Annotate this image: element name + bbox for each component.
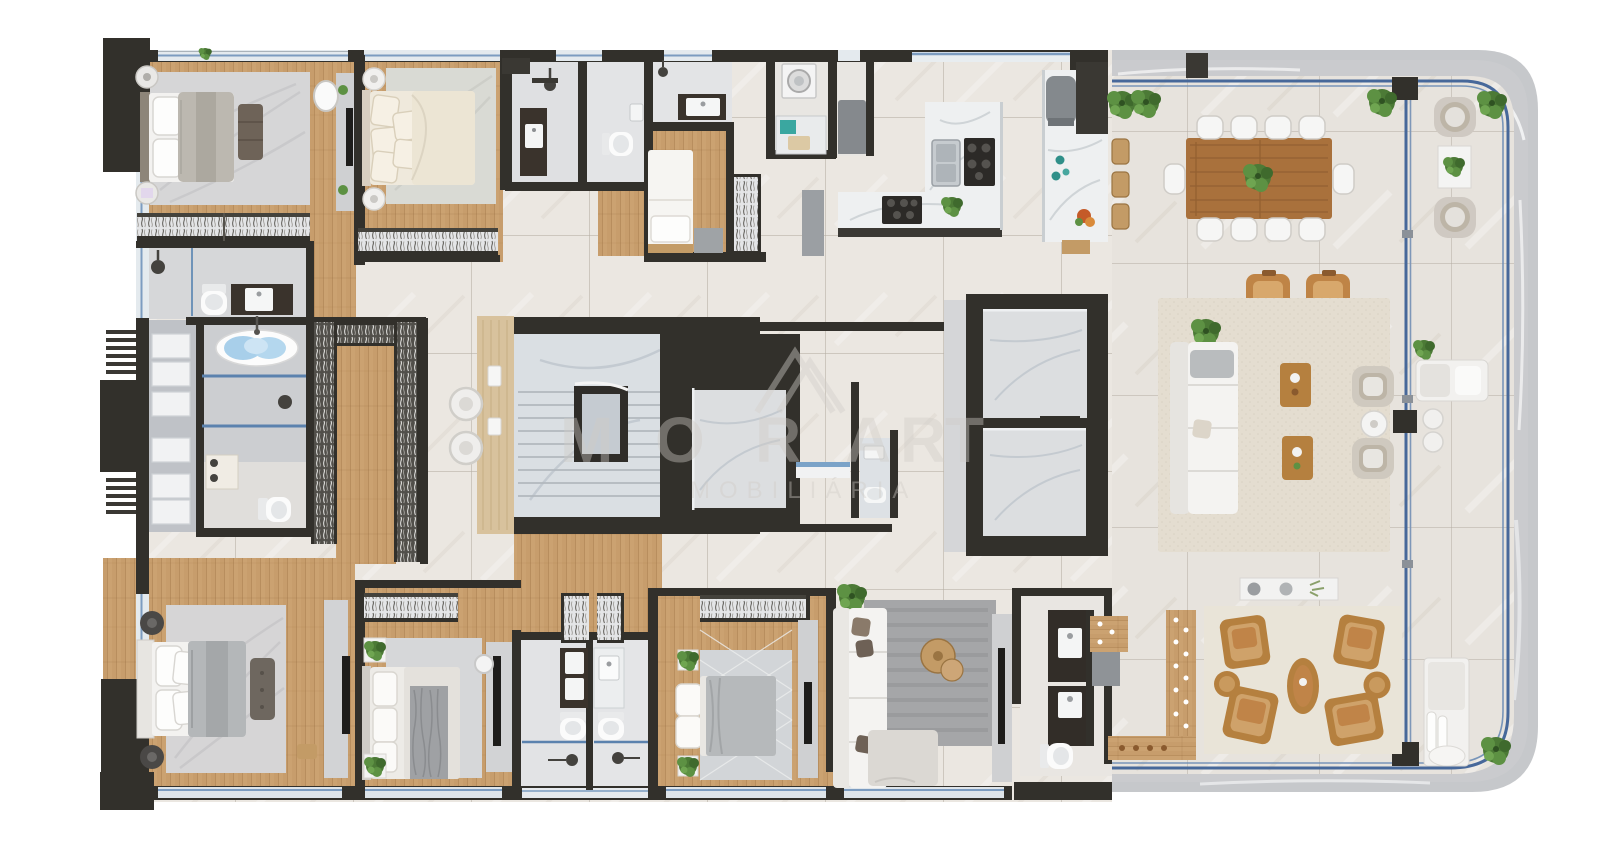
svg-text:MOBILIÁRIA: MOBILIÁRIA [690,477,917,504]
svg-text:T: T [945,404,1014,476]
svg-text:R: R [755,404,831,476]
svg-text:O: O [655,404,735,476]
svg-text:M: M [560,404,643,476]
